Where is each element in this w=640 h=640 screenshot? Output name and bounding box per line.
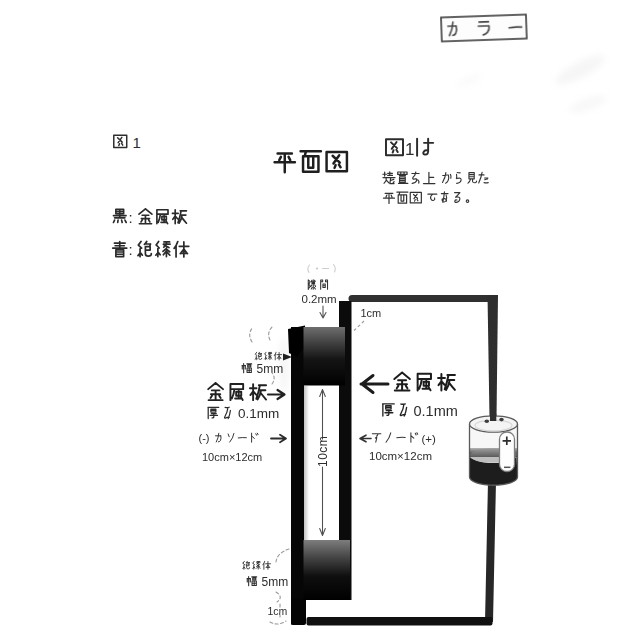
svg-text:1cm: 1cm [268, 605, 288, 617]
svg-text:0.1mm: 0.1mm [238, 406, 279, 421]
svg-text:(-): (-) [199, 432, 210, 444]
svg-text::: : [129, 209, 133, 226]
svg-text:0.2mm: 0.2mm [302, 293, 337, 305]
svg-text:10cm×12cm: 10cm×12cm [202, 451, 262, 463]
svg-text:1: 1 [133, 134, 141, 151]
svg-text:5mm: 5mm [257, 362, 284, 376]
svg-text:1: 1 [405, 140, 414, 159]
svg-text:10cm: 10cm [316, 436, 330, 467]
svg-text::: : [129, 241, 133, 258]
svg-text:10cm×12cm: 10cm×12cm [369, 450, 432, 462]
svg-text:(+): (+) [422, 433, 437, 445]
svg-text:5mm: 5mm [262, 575, 289, 589]
svg-text:0.1mm: 0.1mm [414, 403, 458, 419]
svg-text:1cm: 1cm [361, 307, 382, 319]
